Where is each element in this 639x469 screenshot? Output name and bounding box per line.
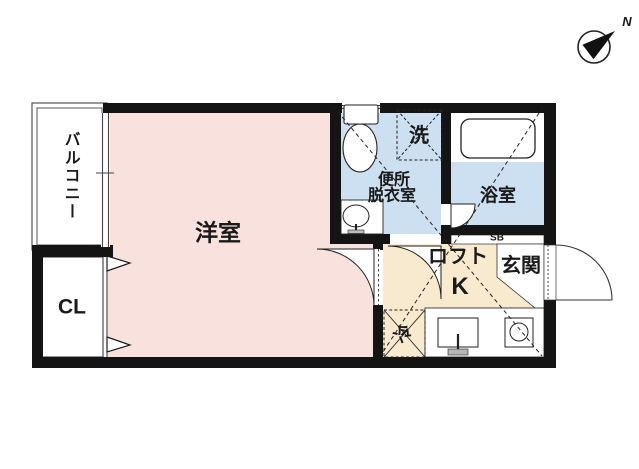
entrance-door-frame — [544, 245, 556, 300]
toilet-room-label-line1: 便所 — [378, 171, 410, 188]
kitchen-label: K — [451, 274, 468, 300]
closet-label: CL — [58, 297, 86, 320]
bathroom-label: 浴室 — [480, 186, 516, 205]
floorplan-drawing — [0, 0, 639, 469]
toilet-icon — [343, 105, 378, 172]
toilet-room-label-line2: 脱衣室 — [368, 187, 416, 204]
compass — [578, 31, 615, 63]
stove-burner-icon — [505, 318, 533, 347]
floorplan: バルコニー 洋室 CL 便所 脱衣室 洗 浴室 SB ロフト K 玄関 冷 N — [0, 0, 639, 469]
entrance-label: 玄関 — [501, 256, 541, 278]
bathtub-icon — [461, 119, 535, 158]
loft-label: ロフト — [428, 247, 488, 269]
washer-label: 洗 — [409, 126, 429, 148]
compass-north-label: N — [622, 15, 631, 29]
balcony-label: バルコニー — [61, 131, 78, 221]
shoebox-label: SB — [490, 234, 504, 245]
washbasin-icon — [341, 200, 383, 234]
western-room-label: 洋室 — [195, 221, 241, 246]
entrance-door-swing — [556, 245, 612, 300]
